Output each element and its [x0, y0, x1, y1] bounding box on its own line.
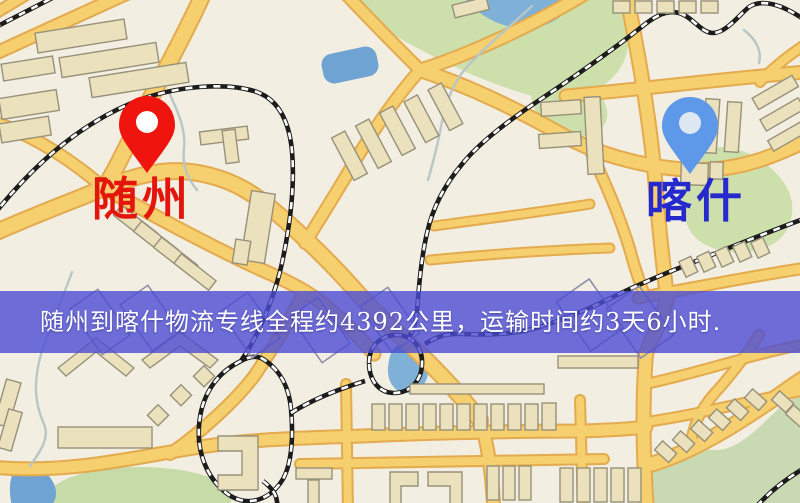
route-info-text: 随州到喀什物流专线全程约4392公里，运输时间约3天6小时. [40, 308, 721, 336]
map-view: 随州到喀什物流专线全程约4392公里，运输时间约3天6小时. 随州 喀什 [0, 0, 800, 503]
route-info-banner: 随州到喀什物流专线全程约4392公里，运输时间约3天6小时. [0, 291, 800, 353]
origin-city-label: 随州 [92, 176, 192, 222]
destination-city-label: 喀什 [646, 178, 746, 224]
map-canvas[interactable] [0, 0, 800, 503]
